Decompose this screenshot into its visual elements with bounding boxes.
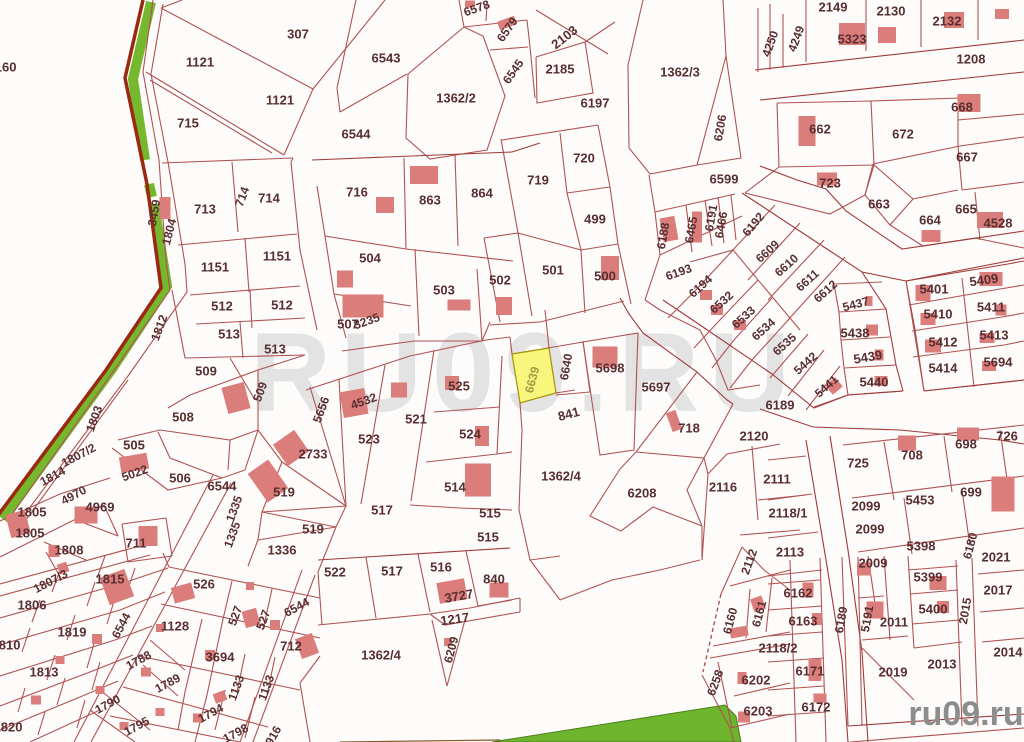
svg-text:1806: 1806 — [18, 597, 47, 612]
svg-text:712: 712 — [280, 638, 302, 653]
svg-text:6208: 6208 — [628, 485, 657, 500]
svg-text:6189: 6189 — [766, 397, 795, 412]
svg-text:5413: 5413 — [980, 327, 1009, 342]
svg-text:1121: 1121 — [266, 92, 294, 107]
svg-text:501: 501 — [542, 262, 564, 277]
svg-text:714: 714 — [258, 190, 280, 205]
svg-text:5698: 5698 — [596, 360, 625, 375]
svg-text:1208: 1208 — [957, 51, 986, 66]
svg-text:1151: 1151 — [201, 259, 229, 274]
svg-text:515: 515 — [479, 505, 501, 520]
svg-text:2111: 2111 — [763, 471, 791, 486]
svg-text:5414: 5414 — [929, 360, 959, 375]
svg-text:2120: 2120 — [740, 428, 769, 443]
svg-text:5398: 5398 — [907, 538, 936, 553]
svg-text:6197: 6197 — [581, 95, 610, 110]
svg-text:525: 525 — [448, 378, 470, 393]
svg-text:2019: 2019 — [879, 664, 908, 679]
svg-text:1128: 1128 — [161, 618, 189, 633]
svg-text:672: 672 — [892, 126, 914, 141]
svg-text:719: 719 — [527, 172, 549, 187]
svg-text:713: 713 — [194, 201, 216, 216]
svg-text:726: 726 — [996, 428, 1018, 443]
svg-text:718: 718 — [678, 420, 700, 435]
svg-text:2099: 2099 — [856, 521, 885, 536]
svg-text:1815: 1815 — [96, 571, 125, 586]
svg-text:662: 662 — [809, 121, 831, 136]
svg-text:499: 499 — [584, 211, 606, 226]
svg-text:515: 515 — [477, 529, 499, 544]
svg-text:2116: 2116 — [709, 479, 737, 494]
svg-text:509: 509 — [195, 363, 217, 378]
svg-text:5694: 5694 — [984, 354, 1014, 369]
svg-text:512: 512 — [271, 297, 293, 312]
svg-text:1810: 1810 — [0, 637, 20, 652]
svg-text:513: 513 — [218, 326, 240, 341]
svg-text:1362/4: 1362/4 — [361, 647, 402, 662]
svg-text:524: 524 — [459, 426, 481, 441]
svg-text:1820: 1820 — [0, 719, 22, 734]
svg-text:715: 715 — [177, 115, 199, 130]
svg-text:863: 863 — [419, 192, 441, 207]
svg-text:307: 307 — [287, 26, 309, 41]
svg-text:500: 500 — [594, 268, 616, 283]
svg-text:6163: 6163 — [789, 613, 818, 628]
svg-text:4969: 4969 — [86, 499, 115, 514]
svg-text:5399: 5399 — [914, 569, 943, 584]
svg-text:1362/3: 1362/3 — [660, 64, 700, 79]
svg-text:5410: 5410 — [924, 306, 953, 321]
svg-text:516: 516 — [430, 559, 452, 574]
svg-text:526: 526 — [193, 576, 215, 591]
svg-text:519: 519 — [302, 521, 324, 536]
svg-text:668: 668 — [951, 99, 973, 114]
svg-text:2132: 2132 — [933, 13, 962, 28]
svg-text:5412: 5412 — [929, 334, 958, 349]
svg-text:665: 665 — [955, 201, 977, 216]
svg-text:698: 698 — [955, 436, 977, 451]
svg-text:2011: 2011 — [880, 614, 908, 629]
svg-text:2118/1: 2118/1 — [768, 505, 807, 520]
svg-text:521: 521 — [405, 411, 427, 426]
svg-text:2733: 2733 — [299, 446, 328, 461]
svg-text:1336: 1336 — [268, 542, 297, 557]
svg-text:6172: 6172 — [802, 699, 831, 714]
svg-text:5401: 5401 — [920, 281, 949, 296]
svg-text:716: 716 — [346, 184, 368, 199]
svg-text:2013: 2013 — [928, 656, 957, 671]
svg-text:725: 725 — [847, 455, 869, 470]
svg-text:2014: 2014 — [994, 644, 1024, 659]
svg-text:1819: 1819 — [58, 624, 87, 639]
svg-text:503: 503 — [433, 282, 455, 297]
svg-text:1808: 1808 — [55, 542, 84, 557]
svg-text:699: 699 — [960, 484, 982, 499]
svg-text:663: 663 — [868, 196, 890, 211]
svg-text:6543: 6543 — [372, 50, 401, 65]
svg-text:664: 664 — [919, 212, 941, 227]
svg-text:1805: 1805 — [18, 504, 47, 519]
svg-text:5411: 5411 — [977, 299, 1005, 314]
svg-text:6202: 6202 — [742, 672, 771, 687]
svg-text:711: 711 — [126, 535, 147, 550]
svg-text:506: 506 — [169, 470, 191, 485]
svg-text:504: 504 — [359, 250, 381, 265]
svg-text:512: 512 — [211, 298, 233, 313]
svg-text:864: 864 — [471, 185, 493, 200]
svg-text:502: 502 — [489, 272, 511, 287]
svg-text:6203: 6203 — [744, 703, 773, 718]
svg-text:840: 840 — [483, 571, 505, 586]
svg-text:2099: 2099 — [852, 498, 881, 513]
svg-text:5453: 5453 — [906, 492, 935, 507]
svg-text:2017: 2017 — [984, 582, 1013, 597]
svg-text:4528: 4528 — [984, 215, 1013, 230]
svg-text:6599: 6599 — [710, 171, 739, 186]
svg-text:5400: 5400 — [919, 601, 948, 616]
svg-text:6162: 6162 — [784, 585, 813, 600]
svg-text:6160: 6160 — [0, 59, 16, 74]
svg-text:6544: 6544 — [342, 126, 372, 141]
svg-text:ru09.ru: ru09.ru — [908, 695, 1023, 733]
svg-text:519: 519 — [273, 484, 295, 499]
svg-text:3694: 3694 — [206, 649, 236, 664]
svg-text:2130: 2130 — [877, 3, 906, 18]
svg-text:517: 517 — [381, 563, 403, 578]
svg-text:2118/2: 2118/2 — [758, 640, 797, 655]
svg-text:1813: 1813 — [30, 664, 59, 679]
svg-text:667: 667 — [956, 149, 978, 164]
svg-text:1151: 1151 — [263, 248, 291, 263]
svg-text:2185: 2185 — [546, 61, 575, 76]
svg-text:6544: 6544 — [208, 478, 238, 493]
svg-text:5697: 5697 — [642, 379, 671, 394]
svg-text:1805: 1805 — [16, 525, 45, 540]
svg-text:1121: 1121 — [186, 54, 214, 69]
svg-text:5438: 5438 — [841, 325, 870, 340]
svg-text:513: 513 — [264, 341, 286, 356]
svg-text:5440: 5440 — [860, 374, 889, 389]
svg-text:517: 517 — [371, 502, 393, 517]
svg-text:6171: 6171 — [796, 663, 825, 678]
svg-text:2113: 2113 — [776, 544, 804, 559]
svg-text:2149: 2149 — [819, 0, 848, 14]
svg-text:723: 723 — [819, 175, 841, 190]
svg-text:508: 508 — [172, 409, 194, 424]
svg-text:2021: 2021 — [982, 549, 1011, 564]
svg-text:708: 708 — [901, 447, 923, 462]
svg-text:514: 514 — [444, 479, 466, 494]
svg-text:1362/4: 1362/4 — [541, 468, 582, 483]
svg-text:523: 523 — [358, 431, 380, 446]
svg-text:2009: 2009 — [859, 555, 888, 570]
svg-text:1362/2: 1362/2 — [436, 90, 476, 105]
svg-text:720: 720 — [573, 150, 595, 165]
svg-text:5323: 5323 — [838, 31, 867, 46]
svg-text:505: 505 — [123, 437, 145, 452]
svg-text:522: 522 — [324, 564, 346, 579]
